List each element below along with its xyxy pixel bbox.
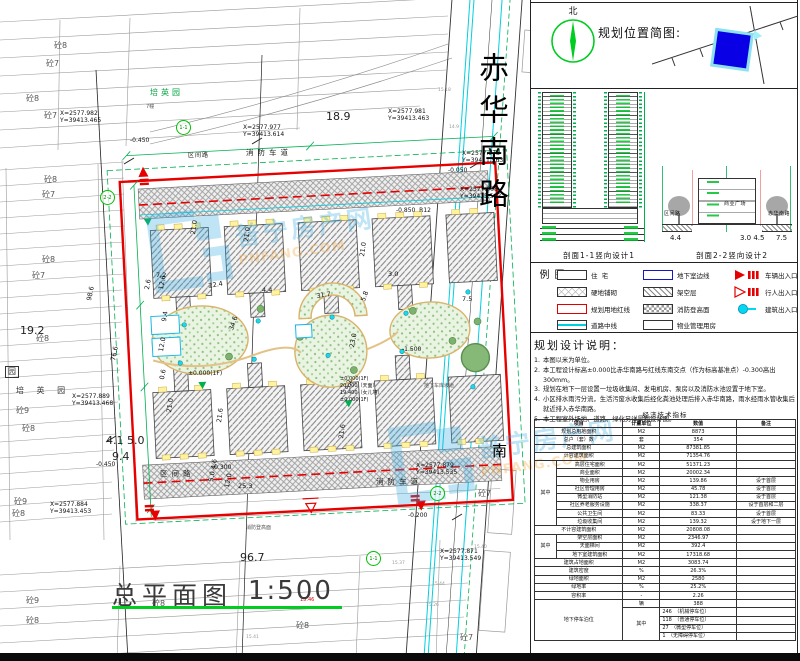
- table-cell: 不计容建筑面积: [535, 526, 623, 534]
- section-2-2-elevation: 区间路 商业广场 赤华南路 4.4 3.0 4.5 7.5: [662, 166, 792, 248]
- table-cell: M2: [623, 575, 660, 583]
- table-cell: 总户（套）数: [535, 436, 623, 444]
- legend-item-basement-line: 地下室边线: [643, 268, 710, 282]
- table-cell: 其中: [623, 608, 660, 641]
- plan-label: 园: [5, 366, 19, 378]
- table-cell: M2: [623, 542, 660, 550]
- table-cell: 商业面积: [557, 469, 623, 477]
- table-cell: 微型消防站: [557, 493, 623, 501]
- table-cell: 2580: [660, 575, 737, 583]
- table-cell: 118 （普通停车位）: [660, 616, 737, 624]
- tower-b: [608, 92, 638, 208]
- plan-label: 砼7: [42, 190, 55, 200]
- location-sketch: [652, 6, 798, 84]
- table-cell: 338.37: [660, 501, 737, 509]
- legend-item-fire-access: 消防登高面: [643, 302, 710, 316]
- table-row: 绿地率%25.2%: [535, 583, 796, 591]
- plan-label: ±0.000(1F): [340, 397, 368, 403]
- section-marker: 1-1: [176, 120, 191, 135]
- section-2-2-dim: 4.4: [670, 234, 681, 242]
- table-cell: 其中: [535, 460, 557, 526]
- plan-label: 消防车道: [376, 477, 422, 486]
- plan-label: 砼7: [46, 59, 59, 69]
- plan-label: -1.500: [402, 346, 421, 353]
- table-cell: 2346.97: [660, 534, 737, 542]
- table-cell: [737, 608, 796, 616]
- table-row: 地下停车泊位辆388: [535, 600, 796, 608]
- fire-access-swatch: [643, 304, 673, 314]
- table-cell: M2: [623, 428, 660, 436]
- table-cell: 架空层面积: [557, 534, 623, 542]
- plan-label: 3.0: [388, 271, 398, 279]
- plan-label: 96.7: [240, 551, 265, 564]
- table-row: 垃圾收集间M2139.32设于地下一层: [535, 518, 796, 526]
- residence-swatch: [557, 270, 587, 280]
- title-underline: [112, 606, 342, 609]
- table-cell: 总建筑面积: [535, 444, 623, 452]
- legend-item-stilt-floor: 架空层: [643, 285, 697, 299]
- plan-label: -0.450: [130, 137, 149, 144]
- table-cell: 建筑占地面积: [535, 559, 623, 567]
- table-cell: 71354.76: [660, 452, 737, 460]
- plan-label: X=2577.889 Y=39413.468: [72, 393, 113, 407]
- location-sketch-drawing: [652, 6, 798, 84]
- table-row: 总建筑面积M287381.85: [535, 444, 796, 452]
- plan-label: 15.37: [392, 561, 405, 566]
- panel-separator: [530, 88, 798, 89]
- plan-label: 砼8: [44, 175, 57, 185]
- section-marker: 1-1: [366, 551, 381, 566]
- table-cell: 139.86: [660, 477, 737, 485]
- building-entrance-icon: [731, 303, 761, 315]
- table-cell: 26.3%: [660, 567, 737, 575]
- table-cell: M2: [623, 444, 660, 452]
- plan-label: 砼9: [26, 596, 39, 606]
- table-cell: 121.38: [660, 493, 737, 501]
- table-row: 绿地面积M22580: [535, 575, 796, 583]
- table-cell: 天面梯间: [557, 542, 623, 550]
- table-row: 社区管理用房M245.78设于首层: [535, 485, 796, 493]
- table-cell: 高层住宅面积: [557, 460, 623, 468]
- plan-label: 消防登高面: [246, 525, 271, 531]
- table-row: 计容建筑面积M271354.76: [535, 452, 796, 460]
- tower-a: [542, 92, 572, 208]
- table-row: 容积率-2.26: [535, 591, 796, 599]
- table-header-cell: 数值: [660, 420, 737, 428]
- table-cell: 公共卫生间: [557, 510, 623, 518]
- legend-item-property-mgmt: 物业管理用房: [643, 318, 716, 332]
- section-marker: 2-2: [430, 486, 445, 501]
- table-cell: 139.32: [660, 518, 737, 526]
- table-cell: 社区管理用房: [557, 485, 623, 493]
- legend-item-building-entrance: 建筑出入口: [731, 302, 798, 316]
- section-marker: 2-2: [100, 190, 115, 205]
- section-2-2-dim: 3.0 4.5: [740, 234, 765, 242]
- table-cell: [737, 526, 796, 534]
- table-row: 规划总用地面积M28873: [535, 428, 796, 436]
- plan-label: X=2577.977 Y=39413.614: [243, 124, 284, 138]
- table-cell: 2.26: [660, 591, 737, 599]
- plan-label: 15.41: [246, 635, 259, 640]
- plan-label: X=2577.982 Y=39413.465: [60, 110, 101, 124]
- table-row: 物业用房M2139.86设于首层: [535, 477, 796, 485]
- table-cell: M2: [623, 477, 660, 485]
- table-cell: 设于首层和二层: [737, 501, 796, 509]
- plan-label: 砼9: [14, 497, 27, 507]
- table-cell: M2: [623, 469, 660, 477]
- property-mgmt-swatch: [643, 320, 673, 330]
- table-header-cell: 备注: [737, 420, 796, 428]
- legend-item-road-centerline: 道路中线: [557, 318, 617, 332]
- table-cell: 20002.34: [660, 469, 737, 477]
- table-cell: 设于首层: [737, 485, 796, 493]
- plan-label: 砼9: [16, 406, 29, 416]
- plan-label: 砼8: [42, 255, 55, 265]
- plan-label: 7.2: [156, 272, 166, 280]
- table-cell: [737, 428, 796, 436]
- note-item: 1.本图以米为单位。: [534, 356, 796, 366]
- legend-item-residence: 住 宅: [557, 268, 608, 282]
- table-cell: 87381.85: [660, 444, 737, 452]
- road-name-char: 南: [492, 440, 507, 461]
- table-cell: 辆: [623, 600, 660, 608]
- table-cell: 容积率: [535, 591, 623, 599]
- table-cell: 规划总用地面积: [535, 428, 623, 436]
- plan-label: 砼7: [32, 271, 45, 281]
- plan-label: 9.4: [112, 450, 130, 463]
- plan-label: 15.18: [438, 88, 451, 93]
- plan-label: X=2577.884 Y=39413.453: [50, 501, 91, 515]
- table-cell: M2: [623, 501, 660, 509]
- sheet: 普宁房产网 PNFANG.COM 普宁房产网 PNFANG.COM X=2577…: [0, 0, 800, 661]
- table-cell: M2: [623, 493, 660, 501]
- plan-label: 18.9: [326, 110, 351, 123]
- plan-label: X=2577.981 Y=39413.463: [388, 108, 429, 122]
- table-cell: -: [623, 591, 660, 599]
- plan-label: 消防车道: [246, 148, 292, 157]
- note-item: 2.本工程设计标高±0.000比赤华南路与红线东南交点（作为标高基准点）-0.3…: [534, 366, 796, 386]
- table-row: 天面梯间M2392.4: [535, 542, 796, 550]
- plan-label: 砼8: [36, 334, 49, 344]
- road-name-label: 赤华南路: [468, 52, 512, 220]
- section-2-2-caption: 剖面2-2竖向设计2: [668, 250, 796, 261]
- table-cell: 设于首层: [737, 477, 796, 485]
- table-row: 项目计量单位数值备注: [535, 420, 796, 428]
- plan-label: 砼7: [44, 111, 57, 121]
- section-1-1-caption: 剖面1-1竖向设计1: [538, 250, 660, 261]
- table-cell: M2: [623, 551, 660, 559]
- legend-item-vehicle-entrance: 车辆出入口: [731, 268, 798, 282]
- plan-label: 4.4: [262, 287, 272, 295]
- table-cell: 20808.08: [660, 526, 737, 534]
- table-row: 其中高层住宅面积M251371.23: [535, 460, 796, 468]
- table-cell: [737, 551, 796, 559]
- eco-table-title: 经济技术指标: [532, 409, 798, 419]
- table-cell: 计容建筑面积: [535, 452, 623, 460]
- plan-label: 4.1 5.0: [106, 434, 144, 447]
- section-2-2-mid-label: 商业广场: [724, 200, 746, 207]
- table-cell: 地下停车泊位: [535, 600, 623, 641]
- table-cell: M2: [623, 485, 660, 493]
- road-centerline-swatch: [557, 320, 587, 330]
- drawing-scale: 1:500: [248, 576, 333, 606]
- vehicle-entrance-icon: [731, 269, 761, 281]
- pedestrian-entrance-icon: [731, 286, 761, 298]
- legend-item-pedestrian-entrance: 行人出入口: [731, 285, 798, 299]
- podium: [542, 208, 638, 224]
- table-cell: 27 （微型停车位）: [660, 624, 737, 632]
- plan-label: 19.400（女儿墙）: [340, 390, 383, 396]
- plan-label: 区间路: [188, 152, 209, 159]
- table-cell: [737, 436, 796, 444]
- table-cell: M2: [623, 526, 660, 534]
- table-cell: [737, 616, 796, 624]
- table-cell: 地下室建筑面积: [557, 551, 623, 559]
- plan-label: -0.850 R12: [396, 207, 431, 214]
- table-cell: [737, 632, 796, 640]
- plan-label: 砼7: [460, 633, 473, 643]
- table-cell: 51371.23: [660, 460, 737, 468]
- plan-label: ±0.000(1F): [188, 370, 222, 377]
- stilt-floor-swatch: [643, 287, 673, 297]
- table-row: 社区养老服务设施M2338.37设于首层和二层: [535, 501, 796, 509]
- table-row: 不计容建筑面积M220808.08: [535, 526, 796, 534]
- plan-label: 砼8: [54, 41, 67, 51]
- table-cell: 建筑密度: [535, 567, 623, 575]
- table-cell: 25.2%: [660, 583, 737, 591]
- north-label: 北: [548, 4, 598, 17]
- table-cell: 3083.74: [660, 559, 737, 567]
- table-row: 地下室建筑面积M217318.68: [535, 551, 796, 559]
- table-cell: [737, 591, 796, 599]
- plan-label: 25.3: [238, 483, 252, 491]
- table-cell: [737, 559, 796, 567]
- plan-label: 砼8: [296, 621, 309, 631]
- table-cell: [737, 444, 796, 452]
- table-cell: [737, 575, 796, 583]
- paving-swatch: [557, 287, 587, 297]
- table-cell: 354: [660, 436, 737, 444]
- north-arrow: 北: [548, 4, 598, 69]
- plan-label: 区间路: [160, 469, 195, 478]
- table-cell: %: [623, 567, 660, 575]
- plan-label: 15.40: [474, 545, 487, 550]
- legend-item-paving: 硬地铺砌: [557, 285, 617, 299]
- table-cell: 其中: [535, 534, 557, 559]
- table-cell: M2: [623, 559, 660, 567]
- table-row: 建筑密度%26.3%: [535, 567, 796, 575]
- section-2-2-left-label: 区间路: [664, 210, 681, 217]
- note-item: 3.规划在地下一层设置一垃圾收集间、发电机房、泵房以及消防水池设置于地下室。: [534, 385, 796, 395]
- table-cell: 设于首层: [737, 493, 796, 501]
- section-1-1-elevation: [540, 92, 658, 246]
- table-row: 其中架空层面积M22346.97: [535, 534, 796, 542]
- plan-label: 培英园: [150, 88, 183, 98]
- table-cell: M2: [623, 452, 660, 460]
- table-cell: 8873: [660, 428, 737, 436]
- table-cell: 垃圾收集间: [557, 518, 623, 526]
- plan-label: -0.050: [448, 167, 467, 174]
- table-cell: M2: [623, 460, 660, 468]
- table-cell: [737, 452, 796, 460]
- table-header-cell: 项目: [535, 420, 623, 428]
- table-cell: 设于地下一层: [737, 518, 796, 526]
- table-cell: M2: [623, 534, 660, 542]
- plan-label: 砼8: [22, 424, 35, 434]
- table-cell: 物业用房: [557, 477, 623, 485]
- table-cell: [737, 469, 796, 477]
- table-header-cell: 计量单位: [623, 420, 660, 428]
- table-cell: [737, 534, 796, 542]
- table-cell: 绿地率: [535, 583, 623, 591]
- table-cell: [737, 600, 796, 608]
- eco-indicators-table: 项目计量单位数值备注规划总用地面积M28873总户（套）数套354总建筑面积M2…: [534, 419, 796, 641]
- panel-top-border: [530, 2, 798, 3]
- basement-line-swatch: [643, 270, 673, 280]
- table-cell: 1 （无障碍停车位）: [660, 632, 737, 640]
- table-cell: 设于首层: [737, 510, 796, 518]
- table-cell: [737, 460, 796, 468]
- table-cell: [737, 542, 796, 550]
- plan-label: 14.9: [449, 125, 459, 130]
- plan-label: -0.200: [408, 512, 427, 519]
- legend: 图例 住 宅 地下室边线 车辆出入口 硬地铺砌 架空层: [531, 262, 798, 333]
- plan-label: 15.44: [432, 582, 445, 587]
- table-cell: 17318.68: [660, 551, 737, 559]
- table-row: 微型消防站M2121.38设于首层: [535, 493, 796, 501]
- north-arrow-icon: [549, 17, 597, 65]
- plan-label: 砼8: [26, 616, 39, 626]
- table-cell: 绿地面积: [535, 575, 623, 583]
- table-cell: [737, 567, 796, 575]
- table-row: 公共卫生间M283.33设于首层: [535, 510, 796, 518]
- section-2-2-dim: 7.5: [776, 234, 787, 242]
- table-cell: 392.4: [660, 542, 737, 550]
- plan-label: 7.5: [462, 296, 472, 304]
- plan-label: 地下车库坡道: [424, 383, 454, 389]
- table-cell: %: [623, 583, 660, 591]
- table-cell: [737, 583, 796, 591]
- plan-label: 砼8: [26, 94, 39, 104]
- table-cell: M2: [623, 510, 660, 518]
- table-cell: [737, 624, 796, 632]
- table-row: 总户（套）数套354: [535, 436, 796, 444]
- table-row: 建筑占地面积M23083.74: [535, 559, 796, 567]
- table-row: 商业面积M220002.34: [535, 469, 796, 477]
- table-cell: M2: [623, 518, 660, 526]
- table-cell: 388: [660, 600, 737, 608]
- plan-label: 培 英 园: [16, 386, 70, 396]
- table-cell: 246 （机械停车位）: [660, 608, 737, 616]
- plan-label: 砼8: [12, 509, 25, 519]
- notes-title: 规划设计说明：: [534, 337, 796, 353]
- plan-label: 7幢: [146, 104, 154, 110]
- table-cell: 套: [623, 436, 660, 444]
- plan-label: X=2577.879 Y=39413.535: [416, 462, 457, 476]
- sheet-bottom-border: [0, 653, 800, 661]
- section-2-2-right-label: 赤华南路: [768, 210, 790, 217]
- plan-label: 砼7: [478, 489, 491, 499]
- table-cell: 83.33: [660, 510, 737, 518]
- legend-item-red-line: 规划用地红线: [557, 302, 630, 316]
- table-cell: 45.78: [660, 485, 737, 493]
- plan-label: 15.26: [426, 603, 439, 608]
- red-line-swatch: [557, 304, 587, 314]
- table-cell: 社区养老服务设施: [557, 501, 623, 509]
